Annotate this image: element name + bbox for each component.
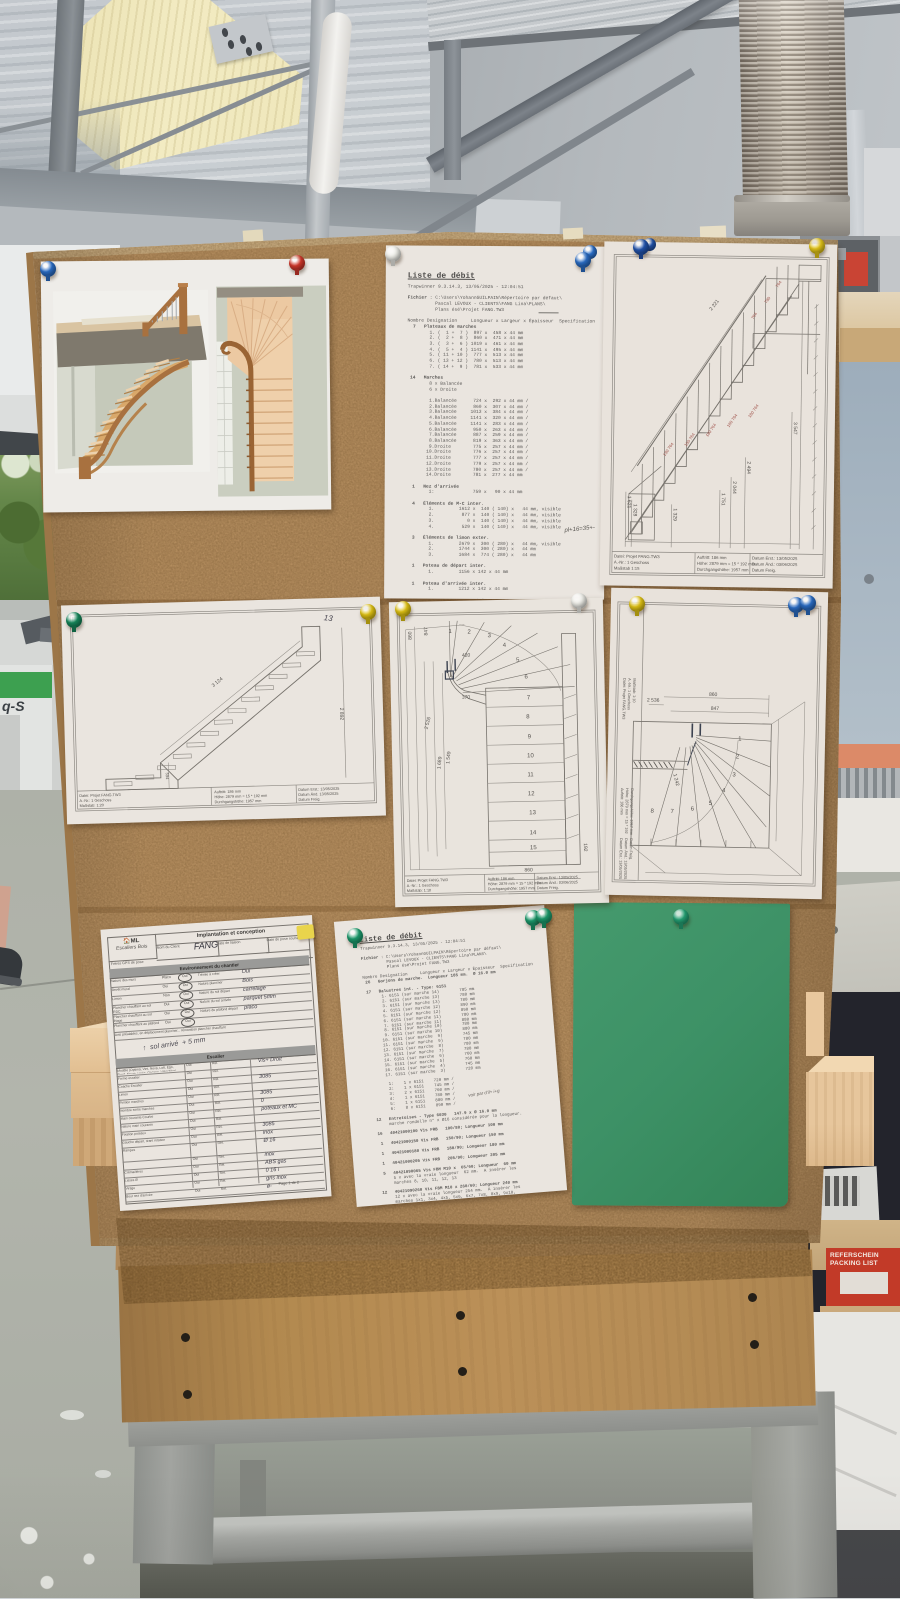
svg-text:847: 847 xyxy=(423,627,429,636)
svg-text:780: 780 xyxy=(763,295,771,304)
svg-text:860: 860 xyxy=(524,867,533,873)
svg-text:Datum Erst.: 13/05/2025: Datum Erst.: 13/05/2025 xyxy=(618,838,623,879)
svg-text:Datum Änd.: 03/06/2025: Datum Änd.: 03/06/2025 xyxy=(752,561,798,567)
svg-text:Auftritt: 186 mm: Auftritt: 186 mm xyxy=(214,790,241,795)
svg-text:Maßstab: 1:20: Maßstab: 1:20 xyxy=(80,803,104,808)
svg-text:Datei: Projet FANG.TW3: Datei: Projet FANG.TW3 xyxy=(614,554,660,560)
svg-text:4: 4 xyxy=(722,788,726,794)
svg-text:847: 847 xyxy=(711,706,720,712)
svg-text:180 764: 180 764 xyxy=(704,422,717,438)
svg-text:Auftritt: 186 mm: Auftritt: 186 mm xyxy=(619,788,624,815)
svg-text:2 892: 2 892 xyxy=(338,708,344,721)
svg-text:Datum Freig.: Datum Freig. xyxy=(537,886,559,890)
svg-text:2 494: 2 494 xyxy=(745,461,751,474)
svg-text:3 547: 3 547 xyxy=(792,422,798,435)
svg-text:A.-Nr.: 1 Geschoss: A.-Nr.: 1 Geschoss xyxy=(614,560,649,565)
svg-text:13: 13 xyxy=(323,613,333,623)
svg-text:7: 7 xyxy=(670,809,674,815)
svg-text:1 549: 1 549 xyxy=(445,751,452,764)
svg-text:14: 14 xyxy=(530,830,537,836)
svg-text:1 242: 1 242 xyxy=(671,773,680,787)
svg-text:4: 4 xyxy=(503,643,507,649)
svg-text:Maßstab 1:15: Maßstab 1:15 xyxy=(614,566,640,571)
svg-text:Datum Erst.: 13/05/2025: Datum Erst.: 13/05/2025 xyxy=(752,555,798,561)
svg-text:11: 11 xyxy=(527,772,534,778)
svg-text:6: 6 xyxy=(691,806,695,812)
svg-text:192: 192 xyxy=(582,843,588,852)
svg-text:15: 15 xyxy=(530,845,537,851)
svg-text:1 751: 1 751 xyxy=(720,493,726,506)
svg-text:1: 1 xyxy=(738,736,742,742)
svg-text:3: 3 xyxy=(487,633,491,639)
svg-text:A.-Nr.: 1 Geschoss: A.-Nr.: 1 Geschoss xyxy=(627,678,632,710)
svg-text:180 764: 180 764 xyxy=(726,412,739,428)
svg-text:A.-Nr.: 1 Geschoss: A.-Nr.: 1 Geschoss xyxy=(407,883,439,888)
svg-text:Auftritt: 186 mm: Auftritt: 186 mm xyxy=(488,877,515,882)
svg-text:764: 764 xyxy=(774,279,782,288)
svg-text:7: 7 xyxy=(527,695,531,701)
svg-text:1 689: 1 689 xyxy=(436,756,443,769)
svg-text:Maßstab: 1:10: Maßstab: 1:10 xyxy=(407,888,431,893)
svg-text:2 536: 2 536 xyxy=(647,698,660,704)
svg-text:764: 764 xyxy=(750,311,758,320)
svg-text:180 764: 180 764 xyxy=(662,441,675,457)
svg-text:180 764: 180 764 xyxy=(747,403,760,419)
svg-text:A.-Nr.: 1 Geschoss: A.-Nr.: 1 Geschoss xyxy=(79,798,111,803)
svg-text:Datum Freig.: Datum Freig. xyxy=(298,797,320,802)
svg-text:12: 12 xyxy=(528,791,535,797)
svg-text:Datei: Projet FANG.TW3: Datei: Projet FANG.TW3 xyxy=(621,678,626,719)
svg-text:Durchgangshöhe: 1957 mm: Durchgangshöhe: 1957 mm xyxy=(697,567,749,573)
svg-text:420: 420 xyxy=(462,653,471,659)
svg-text:1 329: 1 329 xyxy=(672,508,678,521)
svg-text:Auftritt: 186 mm: Auftritt: 186 mm xyxy=(697,555,727,560)
svg-text:5: 5 xyxy=(516,658,520,664)
svg-text:8: 8 xyxy=(650,809,654,815)
svg-text:Durchgangshöhe: 1957 mm: Durchgangshöhe: 1957 mm xyxy=(215,799,262,804)
svg-text:Datum Änd.: 03/06/2025: Datum Änd.: 03/06/2025 xyxy=(537,880,578,885)
svg-text:860: 860 xyxy=(709,692,718,698)
svg-text:6: 6 xyxy=(524,674,528,680)
svg-text:9: 9 xyxy=(528,734,532,740)
svg-text:Datum Änd.: 13/05/2025: Datum Änd.: 13/05/2025 xyxy=(623,838,628,879)
svg-text:3: 3 xyxy=(732,772,736,778)
svg-text:Höhe: 2879 mm = 15 * 192 mm: Höhe: 2879 mm = 15 * 192 mm xyxy=(697,561,756,567)
svg-text:Datum Freig.: Datum Freig. xyxy=(752,567,776,572)
svg-text:2 044: 2 044 xyxy=(731,481,737,494)
svg-text:10: 10 xyxy=(527,753,534,759)
svg-text:Durchgangshöhe: 1957 mm: Durchgangshöhe: 1957 mm xyxy=(488,886,535,891)
svg-text:2 526: 2 526 xyxy=(424,716,433,730)
svg-text:Datei: Projet FANG.TW3: Datei: Projet FANG.TW3 xyxy=(79,793,120,798)
svg-text:8: 8 xyxy=(526,714,530,720)
svg-text:Datum Änd. 13/05/2025: Datum Änd. 13/05/2025 xyxy=(298,792,338,797)
svg-text:2 221: 2 221 xyxy=(708,298,721,312)
svg-text:2: 2 xyxy=(736,754,740,760)
svg-text:Datei: Projet FANG.TW3: Datei: Projet FANG.TW3 xyxy=(407,878,448,883)
svg-text:860: 860 xyxy=(407,631,413,640)
svg-text:13: 13 xyxy=(529,810,536,816)
svg-text:1: 1 xyxy=(448,629,452,635)
svg-text:1 328: 1 328 xyxy=(632,504,638,517)
svg-text:370: 370 xyxy=(462,695,471,701)
svg-text:2: 2 xyxy=(467,630,471,636)
svg-text:3 124: 3 124 xyxy=(211,676,225,689)
svg-text:1 621: 1 621 xyxy=(626,496,632,509)
svg-text:594: 594 xyxy=(165,773,170,781)
svg-text:Maßstab: 1:10: Maßstab: 1:10 xyxy=(632,678,637,702)
